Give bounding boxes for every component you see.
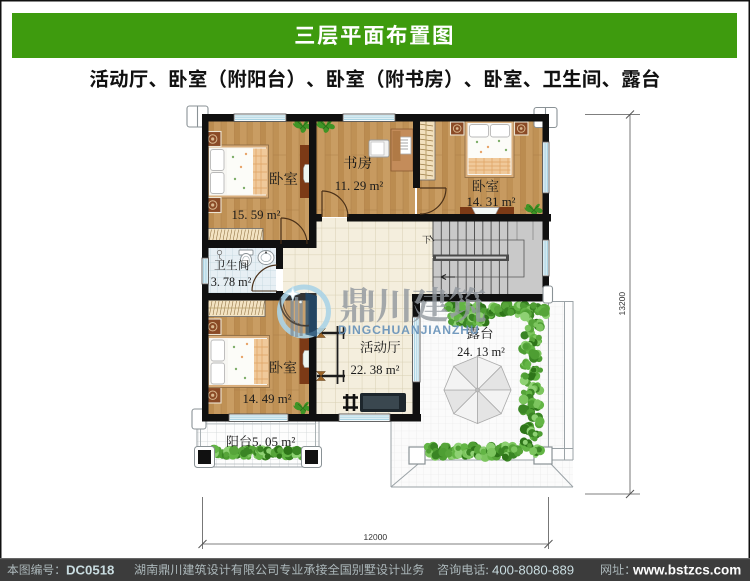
svg-text:22. 38 m²: 22. 38 m²: [351, 363, 400, 377]
svg-text:11. 29 m²: 11. 29 m²: [335, 179, 384, 193]
svg-text:400-8080-889: 400-8080-889: [492, 563, 574, 578]
svg-text:3. 78 m²: 3. 78 m²: [211, 275, 252, 289]
svg-text:DC0518: DC0518: [66, 563, 114, 578]
svg-text:DINGCHUANJIANZHU: DINGCHUANJIANZHU: [338, 323, 480, 337]
svg-text:24. 13 m²: 24. 13 m²: [457, 345, 505, 359]
svg-text:14. 31 m²: 14. 31 m²: [467, 195, 516, 209]
svg-text:www.bstzcs.com: www.bstzcs.com: [632, 563, 741, 578]
svg-text:15. 59 m²: 15. 59 m²: [232, 208, 281, 222]
svg-text:5. 05 m²: 5. 05 m²: [252, 434, 295, 449]
svg-text:14. 49 m²: 14. 49 m²: [243, 392, 292, 406]
